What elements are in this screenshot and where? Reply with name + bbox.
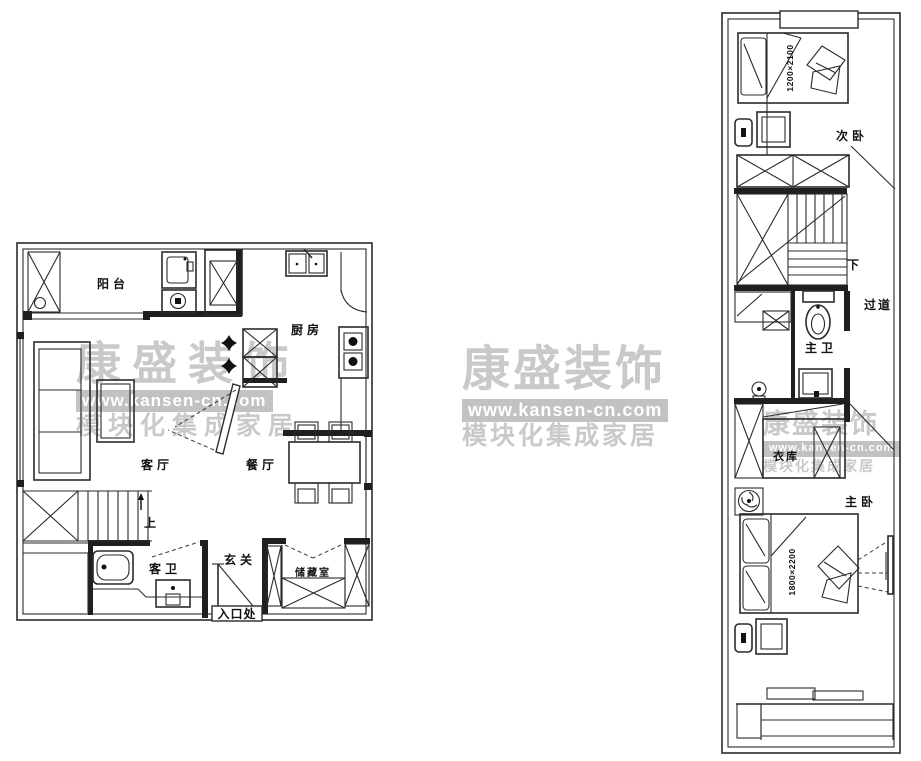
room-label-foyer: 玄关	[224, 552, 256, 567]
label-stairs-up: 上	[144, 515, 156, 530]
dining-table	[289, 442, 360, 483]
wardrobe-cabinet	[737, 155, 849, 187]
floorplan-page: 康盛装饰 www.kansen-cn.com 模块化集成家居 康盛装饰 www.…	[0, 0, 921, 761]
nightstand	[756, 619, 787, 654]
bed-dimension: 1800×2200	[787, 548, 797, 595]
floor-drain-icon	[752, 382, 766, 399]
top-wall-notch	[780, 11, 858, 28]
exhaust-fan-icon	[735, 488, 763, 515]
stairs-up	[23, 491, 152, 613]
outer-wall	[722, 13, 900, 753]
second-floor-plan: 1200×2100	[722, 11, 900, 753]
room-label-balcony: 阳台	[97, 276, 129, 291]
first-floor-plan: 阳台 厨房 客厅 餐厅 玄关 客卫 储藏室 入口处 上	[17, 243, 372, 621]
room-label-kitchen: 厨房	[291, 322, 323, 337]
room-label-wardrobe: 衣库	[773, 449, 799, 463]
bath-counter	[735, 292, 791, 330]
floor-drain-icon	[35, 298, 46, 309]
floorplan-drawing: 阳台 厨房 客厅 餐厅 玄关 客卫 储藏室 入口处 上	[0, 0, 921, 761]
closet-door-leaf	[850, 404, 894, 450]
toilet-icon	[803, 291, 834, 339]
tv-sightlines	[858, 541, 888, 592]
sofa	[34, 342, 90, 480]
bay-window	[736, 704, 894, 740]
stove-icon	[339, 327, 368, 378]
wall-switch	[735, 624, 752, 652]
label-stairs-down: 下	[847, 258, 859, 272]
plant-icon	[221, 358, 237, 374]
room-label-living: 客厅	[140, 457, 173, 472]
stairs-down	[737, 194, 847, 285]
wall-switch	[735, 119, 752, 146]
room-label-dining: 餐厅	[246, 457, 278, 472]
room-label-storage: 储藏室	[294, 566, 331, 579]
coffee-table	[97, 380, 134, 442]
outer-wall-inner	[728, 19, 894, 747]
walkin-closet	[735, 404, 845, 478]
room-label-master-bath: 主卫	[805, 340, 837, 355]
bath-counter	[93, 589, 202, 597]
bed-dimension: 1200×2100	[785, 44, 795, 91]
bath-door-swing	[152, 542, 199, 557]
kitchen-sink	[286, 249, 327, 276]
laundry-sink	[162, 252, 196, 288]
washing-machine-icon	[162, 290, 196, 313]
room-label-hallway: 过道	[864, 297, 892, 312]
nightstand	[757, 112, 790, 147]
bedroom-door-leaf	[851, 146, 895, 189]
bathtub	[93, 551, 133, 584]
room-label-second-bedroom: 次卧	[836, 128, 868, 143]
room-label-guest-bath: 客卫	[148, 561, 181, 576]
tv-icon	[886, 536, 893, 594]
balcony-slider	[767, 688, 863, 700]
entry-door	[212, 564, 253, 606]
room-label-master-bedroom: 主卧	[845, 494, 877, 509]
door-swing-dash	[168, 430, 214, 450]
dining-window	[364, 430, 372, 490]
toilet-icon	[156, 580, 190, 607]
master-bed	[740, 514, 859, 613]
shower-basin	[799, 369, 832, 398]
label-entrance: 入口处	[217, 606, 256, 621]
plant-icon	[221, 335, 237, 351]
up-arrow-head	[138, 493, 144, 500]
balcony-cabinet	[28, 252, 60, 312]
